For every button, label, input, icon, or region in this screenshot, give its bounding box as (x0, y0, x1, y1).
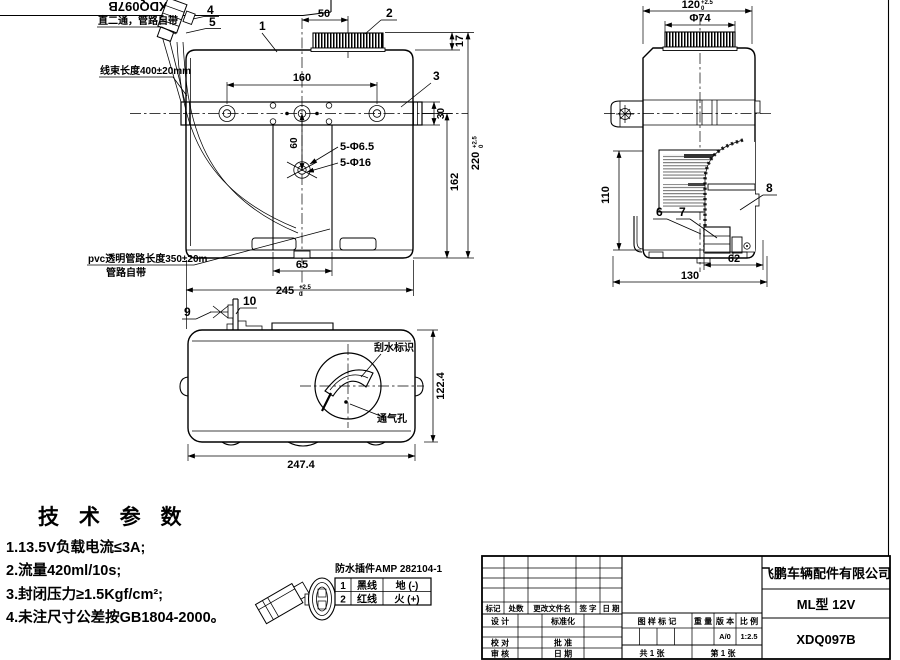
pin-number: 1 (340, 581, 346, 592)
dim-text: 162 (449, 173, 461, 191)
wire-function: 火 (+) (394, 594, 419, 606)
label-proofread: 校 对 (491, 638, 509, 648)
cap-flange (311, 48, 385, 52)
top-boss (272, 323, 333, 330)
dim-162: 162 (413, 114, 474, 259)
pvc-hose (183, 42, 298, 233)
dim-17: 17 (385, 33, 474, 51)
dim-text: 160 (293, 72, 311, 84)
wiper-icon (322, 370, 373, 411)
label-review: 审 核 (491, 649, 509, 659)
bottom-tab (697, 258, 710, 263)
sheet-total: 共 1 张 (640, 648, 666, 658)
dim-text: 122.4 (435, 371, 447, 399)
tech-param-item: 4.未注尺寸公差按GB1804-2000。 (6, 608, 225, 626)
side-tab (755, 101, 760, 113)
version-value: A/0 (719, 632, 731, 641)
mount-bracket (611, 101, 643, 127)
title-block: 标记 处数 更改文件名 签 字 日 期 设 计 标准化 校 对 批 准 审 核 … (482, 556, 891, 659)
product-model: ML型 12V (797, 597, 856, 612)
drawing-sheet: XDQ097B (0, 0, 900, 660)
hole-labels: 5-Φ6.5 5-Φ16 (307, 141, 374, 172)
label-standardization: 标准化 (550, 616, 575, 626)
filler-cap (665, 32, 735, 47)
svg-text:线束长度400±20mm: 线束长度400±20mm (100, 64, 191, 77)
svg-text:5: 5 (209, 15, 216, 29)
svg-text:9: 9 (184, 305, 191, 319)
pvc-hose (177, 42, 296, 228)
tolerance-text: +2.5 (299, 285, 312, 291)
dim-247: 247.4 (188, 444, 415, 471)
dim-text: 130 (681, 270, 699, 282)
label-weight: 重 量 (694, 616, 712, 626)
dim-text: 220 (470, 152, 482, 170)
dim-text: 50 (318, 8, 330, 20)
cap-flange (663, 47, 737, 51)
connector-pin-table: 1 黑线 地 (-) 2 红线 火 (+) (335, 578, 431, 606)
callout-9: 9 (182, 305, 211, 319)
rev-col-header: 更改文件名 (533, 603, 571, 613)
label-scale: 比 例 (740, 616, 758, 626)
label-approve: 批 准 (554, 638, 572, 648)
svg-text:pvc透明管路长度350±20m: pvc透明管路长度350±20m (88, 252, 208, 265)
foot (649, 252, 663, 258)
company-name: 飞鹏车辆配件有限公司 (761, 566, 891, 581)
tolerance-text: +2.5 (473, 135, 479, 148)
rev-col-header: 日 期 (602, 603, 620, 613)
label-drawing-mark: 图 样 标 记 (638, 616, 677, 626)
pin-number: 2 (340, 595, 346, 606)
left-tab (180, 377, 188, 396)
callout-1: 1 (259, 19, 277, 52)
tech-param-item: 1.13.5V负载电流≤3A; (6, 538, 145, 556)
dim-text: 65 (296, 259, 308, 271)
connector-plug-drawing (255, 578, 335, 624)
inner-shelf (708, 184, 755, 190)
tech-param-item: 3.封闭压力≥1.5Kgf/cm²; (6, 585, 163, 603)
dim-text: Φ74 (689, 13, 711, 25)
dim-text: 62 (728, 253, 740, 265)
connector-detail: 防水插件AMP 282104-1 1 黑线 地 (-) 2 红线 火 (+) (255, 562, 442, 624)
tolerance-text: 0 (299, 292, 303, 298)
label-version: 版 本 (715, 616, 734, 626)
screw-icon (210, 305, 233, 318)
corner-part-number: XDQ097B (108, 0, 167, 14)
wire-function: 地 (-) (396, 579, 419, 592)
side-view: Φ74 120 +2.5 0 110 62 130 6 7 8 (600, 0, 777, 287)
hole-label-large: 5-Φ16 (340, 157, 371, 169)
note-pvc-pipe: pvc透明管路长度350±20m 管路自带 (87, 229, 330, 279)
label-design: 设 计 (491, 616, 509, 626)
dim-text: 17 (454, 35, 466, 47)
dim-text: 110 (600, 186, 612, 204)
mount-hook (637, 216, 643, 249)
svg-text:通气孔: 通气孔 (377, 412, 407, 425)
svg-text:6: 6 (656, 205, 663, 219)
scale-value: 1:2.5 (740, 632, 757, 641)
callout-2: 2 (365, 6, 397, 34)
svg-text:8: 8 (766, 181, 773, 195)
wire-color: 红线 (357, 593, 377, 606)
rev-col-header: 签 字 (578, 603, 597, 613)
vent-hole-dot (344, 400, 348, 404)
foot-right (340, 238, 376, 250)
dim-text: 60 (289, 137, 300, 149)
engineering-drawing: XDQ097B (0, 0, 900, 660)
pump-body (704, 227, 730, 253)
callout-3: 3 (401, 69, 440, 107)
dim-text: 247.4 (287, 459, 315, 471)
label-date: 日 期 (554, 649, 572, 659)
filler-cap (313, 33, 383, 48)
dim-130: 130 (613, 256, 767, 287)
svg-text:管路自带: 管路自带 (106, 266, 146, 279)
tech-params: 技 术 参 数 1.13.5V负载电流≤3A; 2.流量420ml/10s; 3… (6, 505, 225, 626)
dim-50: 50 (302, 8, 348, 20)
svg-text:1: 1 (259, 19, 266, 33)
svg-text:10: 10 (243, 294, 257, 308)
svg-text:直二通，管路自带: 直二通，管路自带 (98, 14, 178, 27)
note-harness-length: 线束长度400±20mm (99, 64, 191, 96)
tolerance-text: 0 (479, 144, 485, 148)
drawing-number: XDQ097B (796, 632, 855, 647)
rev-col-header: 标记 (485, 603, 501, 613)
wire-color: 黑线 (357, 579, 377, 592)
rev-col-header: 处数 (508, 603, 524, 613)
front-view: 50 17 160 30 60 162 220 +2.5 0 (87, 0, 485, 329)
dim-220: 220 +2.5 0 (468, 33, 485, 259)
top-view: 刮水标识 通气孔 9 10 247.4 (180, 294, 447, 471)
svg-text:7: 7 (679, 205, 686, 219)
tech-params-title: 技 术 参 数 (38, 505, 189, 529)
hole-label-small: 5-Φ6.5 (340, 141, 374, 153)
label-vent-hole: 通气孔 (350, 404, 407, 425)
dim-110: 110 (600, 151, 643, 250)
right-tab (415, 377, 423, 396)
dim-text: 120 (682, 0, 700, 11)
dim-text: 245 (276, 285, 294, 297)
connector-title: 防水插件AMP 282104-1 (335, 562, 443, 575)
svg-text:2: 2 (386, 6, 393, 20)
dim-60: 60 (289, 114, 302, 171)
svg-text:3: 3 (433, 69, 440, 83)
callout-10: 10 (236, 294, 257, 314)
pump-outlet (732, 237, 742, 253)
svg-text:刮水标识: 刮水标识 (374, 341, 414, 354)
sheet-number: 第 1 张 (711, 648, 737, 658)
tech-param-item: 2.流量420ml/10s; (6, 561, 121, 579)
